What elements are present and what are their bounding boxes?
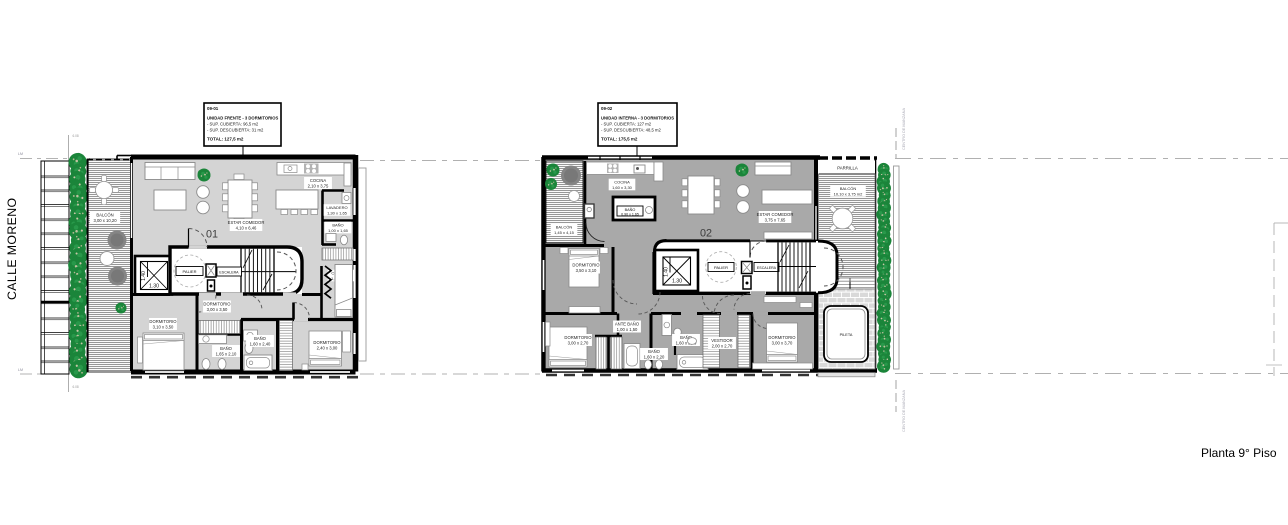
svg-text:1,60 x 2,20: 1,60 x 2,20	[644, 355, 665, 360]
svg-text:10,10 x 3,75 m2: 10,10 x 3,75 m2	[834, 191, 863, 196]
svg-text:ANTE BAÑO: ANTE BAÑO	[615, 322, 640, 327]
svg-text:DORMITORIO: DORMITORIO	[768, 335, 796, 340]
svg-text:- SUP. CUBIERTA: 96,5 m2: - SUP. CUBIERTA: 96,5 m2	[207, 122, 259, 127]
svg-text:1,30 x 1,65: 1,30 x 1,65	[327, 210, 348, 215]
svg-text:1,45 x 4,15: 1,45 x 4,15	[554, 230, 575, 235]
svg-text:PALIER: PALIER	[183, 269, 197, 274]
svg-text:PARRILLA: PARRILLA	[837, 166, 858, 171]
svg-text:1,60 x 2,40: 1,60 x 2,40	[250, 342, 271, 347]
svg-text:3,10 x 3,50: 3,10 x 3,50	[153, 325, 174, 330]
svg-text:2,00 x 2,70: 2,00 x 2,70	[712, 344, 733, 349]
svg-text:DORMITORIO: DORMITORIO	[572, 263, 600, 268]
svg-text:1,65 x 2,10: 1,65 x 2,10	[216, 352, 237, 357]
svg-text:Planta 9° Piso: Planta 9° Piso	[1201, 446, 1277, 460]
svg-text:COCINA: COCINA	[614, 180, 630, 185]
svg-text:BALCÓN: BALCÓN	[556, 225, 573, 230]
svg-text:3,50 x 3,10: 3,50 x 3,10	[576, 268, 597, 273]
svg-text:2,10 x 3,75: 2,10 x 3,75	[308, 184, 329, 189]
svg-text:1.30: 1.30	[149, 284, 159, 290]
svg-text:02: 02	[700, 228, 712, 240]
svg-text:BAÑO: BAÑO	[625, 207, 636, 212]
svg-text:DORMITORIO: DORMITORIO	[149, 319, 177, 324]
svg-text:4,10 x 6,46: 4,10 x 6,46	[236, 226, 257, 231]
svg-text:3,00 x 10,20: 3,00 x 10,20	[93, 218, 117, 223]
svg-text:BAÑO: BAÑO	[648, 349, 661, 354]
svg-text:01: 01	[206, 229, 218, 241]
svg-text:1,00 x 1,65: 1,00 x 1,65	[328, 228, 349, 233]
svg-text:2,40 x 3,00: 2,40 x 3,00	[317, 346, 338, 351]
svg-text:BAÑO: BAÑO	[220, 346, 233, 351]
svg-text:BALCÓN: BALCÓN	[840, 186, 857, 191]
svg-text:ESCALERA: ESCALERA	[219, 271, 239, 275]
svg-text:LAVADERO: LAVADERO	[326, 205, 347, 210]
svg-text:1.40: 1.40	[141, 271, 147, 281]
svg-text:PALIER: PALIER	[714, 265, 728, 270]
svg-text:6.08: 6.08	[73, 385, 79, 389]
svg-text:3,00 x 2,70: 3,00 x 2,70	[568, 341, 589, 346]
svg-text:1,00 x 1,50: 1,00 x 1,50	[617, 327, 638, 332]
svg-text:BAÑO: BAÑO	[332, 223, 343, 228]
svg-text:- SUP. DESCUBIERTA: 31 m2: - SUP. DESCUBIERTA: 31 m2	[207, 128, 264, 133]
svg-text:COCINA: COCINA	[310, 178, 326, 183]
svg-text:DORMITORIO: DORMITORIO	[564, 335, 592, 340]
svg-text:ESTAR COMEDOR: ESTAR COMEDOR	[228, 220, 265, 225]
svg-text:DORMITORIO: DORMITORIO	[313, 340, 341, 345]
svg-text:CENTRO DE MANZANA: CENTRO DE MANZANA	[902, 390, 906, 432]
svg-text:3,75 x 7,65: 3,75 x 7,65	[765, 218, 786, 223]
svg-text:VESTIDOR: VESTIDOR	[711, 338, 732, 343]
svg-text:DORMITORIO: DORMITORIO	[203, 302, 231, 307]
svg-text:PILETA: PILETA	[840, 333, 853, 337]
svg-text:BALCÓN: BALCÓN	[96, 213, 113, 218]
svg-text:TOTAL: 175,5 m2: TOTAL: 175,5 m2	[601, 137, 638, 142]
svg-text:3,00 x 3,70: 3,00 x 3,70	[772, 341, 793, 346]
svg-text:1.40: 1.40	[663, 267, 669, 277]
svg-text:CENTRO DE MANZANA: CENTRO DE MANZANA	[902, 108, 906, 150]
svg-text:3,00 x 3,50: 3,00 x 3,50	[207, 307, 228, 312]
svg-text:- SUP. CUBIERTA: 127 m2: - SUP. CUBIERTA: 127 m2	[601, 122, 652, 127]
svg-text:BAÑO: BAÑO	[254, 336, 267, 341]
svg-text:ESTAR COMEDOR: ESTAR COMEDOR	[757, 212, 794, 217]
svg-text:09-01: 09-01	[207, 106, 219, 111]
svg-text:- SUP. DESCUBIERTA: 48,5 m2: - SUP. DESCUBIERTA: 48,5 m2	[601, 128, 661, 133]
svg-text:UNIDAD FRENTE - 3 DORMITORIOS: UNIDAD FRENTE - 3 DORMITORIOS	[207, 116, 279, 121]
svg-text:CALLE MORENO: CALLE MORENO	[5, 197, 19, 300]
svg-text:TOTAL: 127,5 m2: TOTAL: 127,5 m2	[207, 137, 244, 142]
svg-text:UNIDAD INTERNA - 3 DORMITORIOS: UNIDAD INTERNA - 3 DORMITORIOS	[601, 116, 674, 121]
svg-text:09-02: 09-02	[601, 106, 613, 111]
svg-text:LM: LM	[18, 368, 23, 372]
svg-text:1,60 x 3,30: 1,60 x 3,30	[612, 185, 633, 190]
svg-text:LM: LM	[18, 152, 23, 156]
svg-text:ESCALERA: ESCALERA	[757, 266, 777, 270]
svg-text:6.08: 6.08	[73, 134, 79, 138]
svg-text:0,90 x 1,65: 0,90 x 1,65	[621, 213, 639, 217]
svg-text:1.30: 1.30	[672, 279, 682, 285]
